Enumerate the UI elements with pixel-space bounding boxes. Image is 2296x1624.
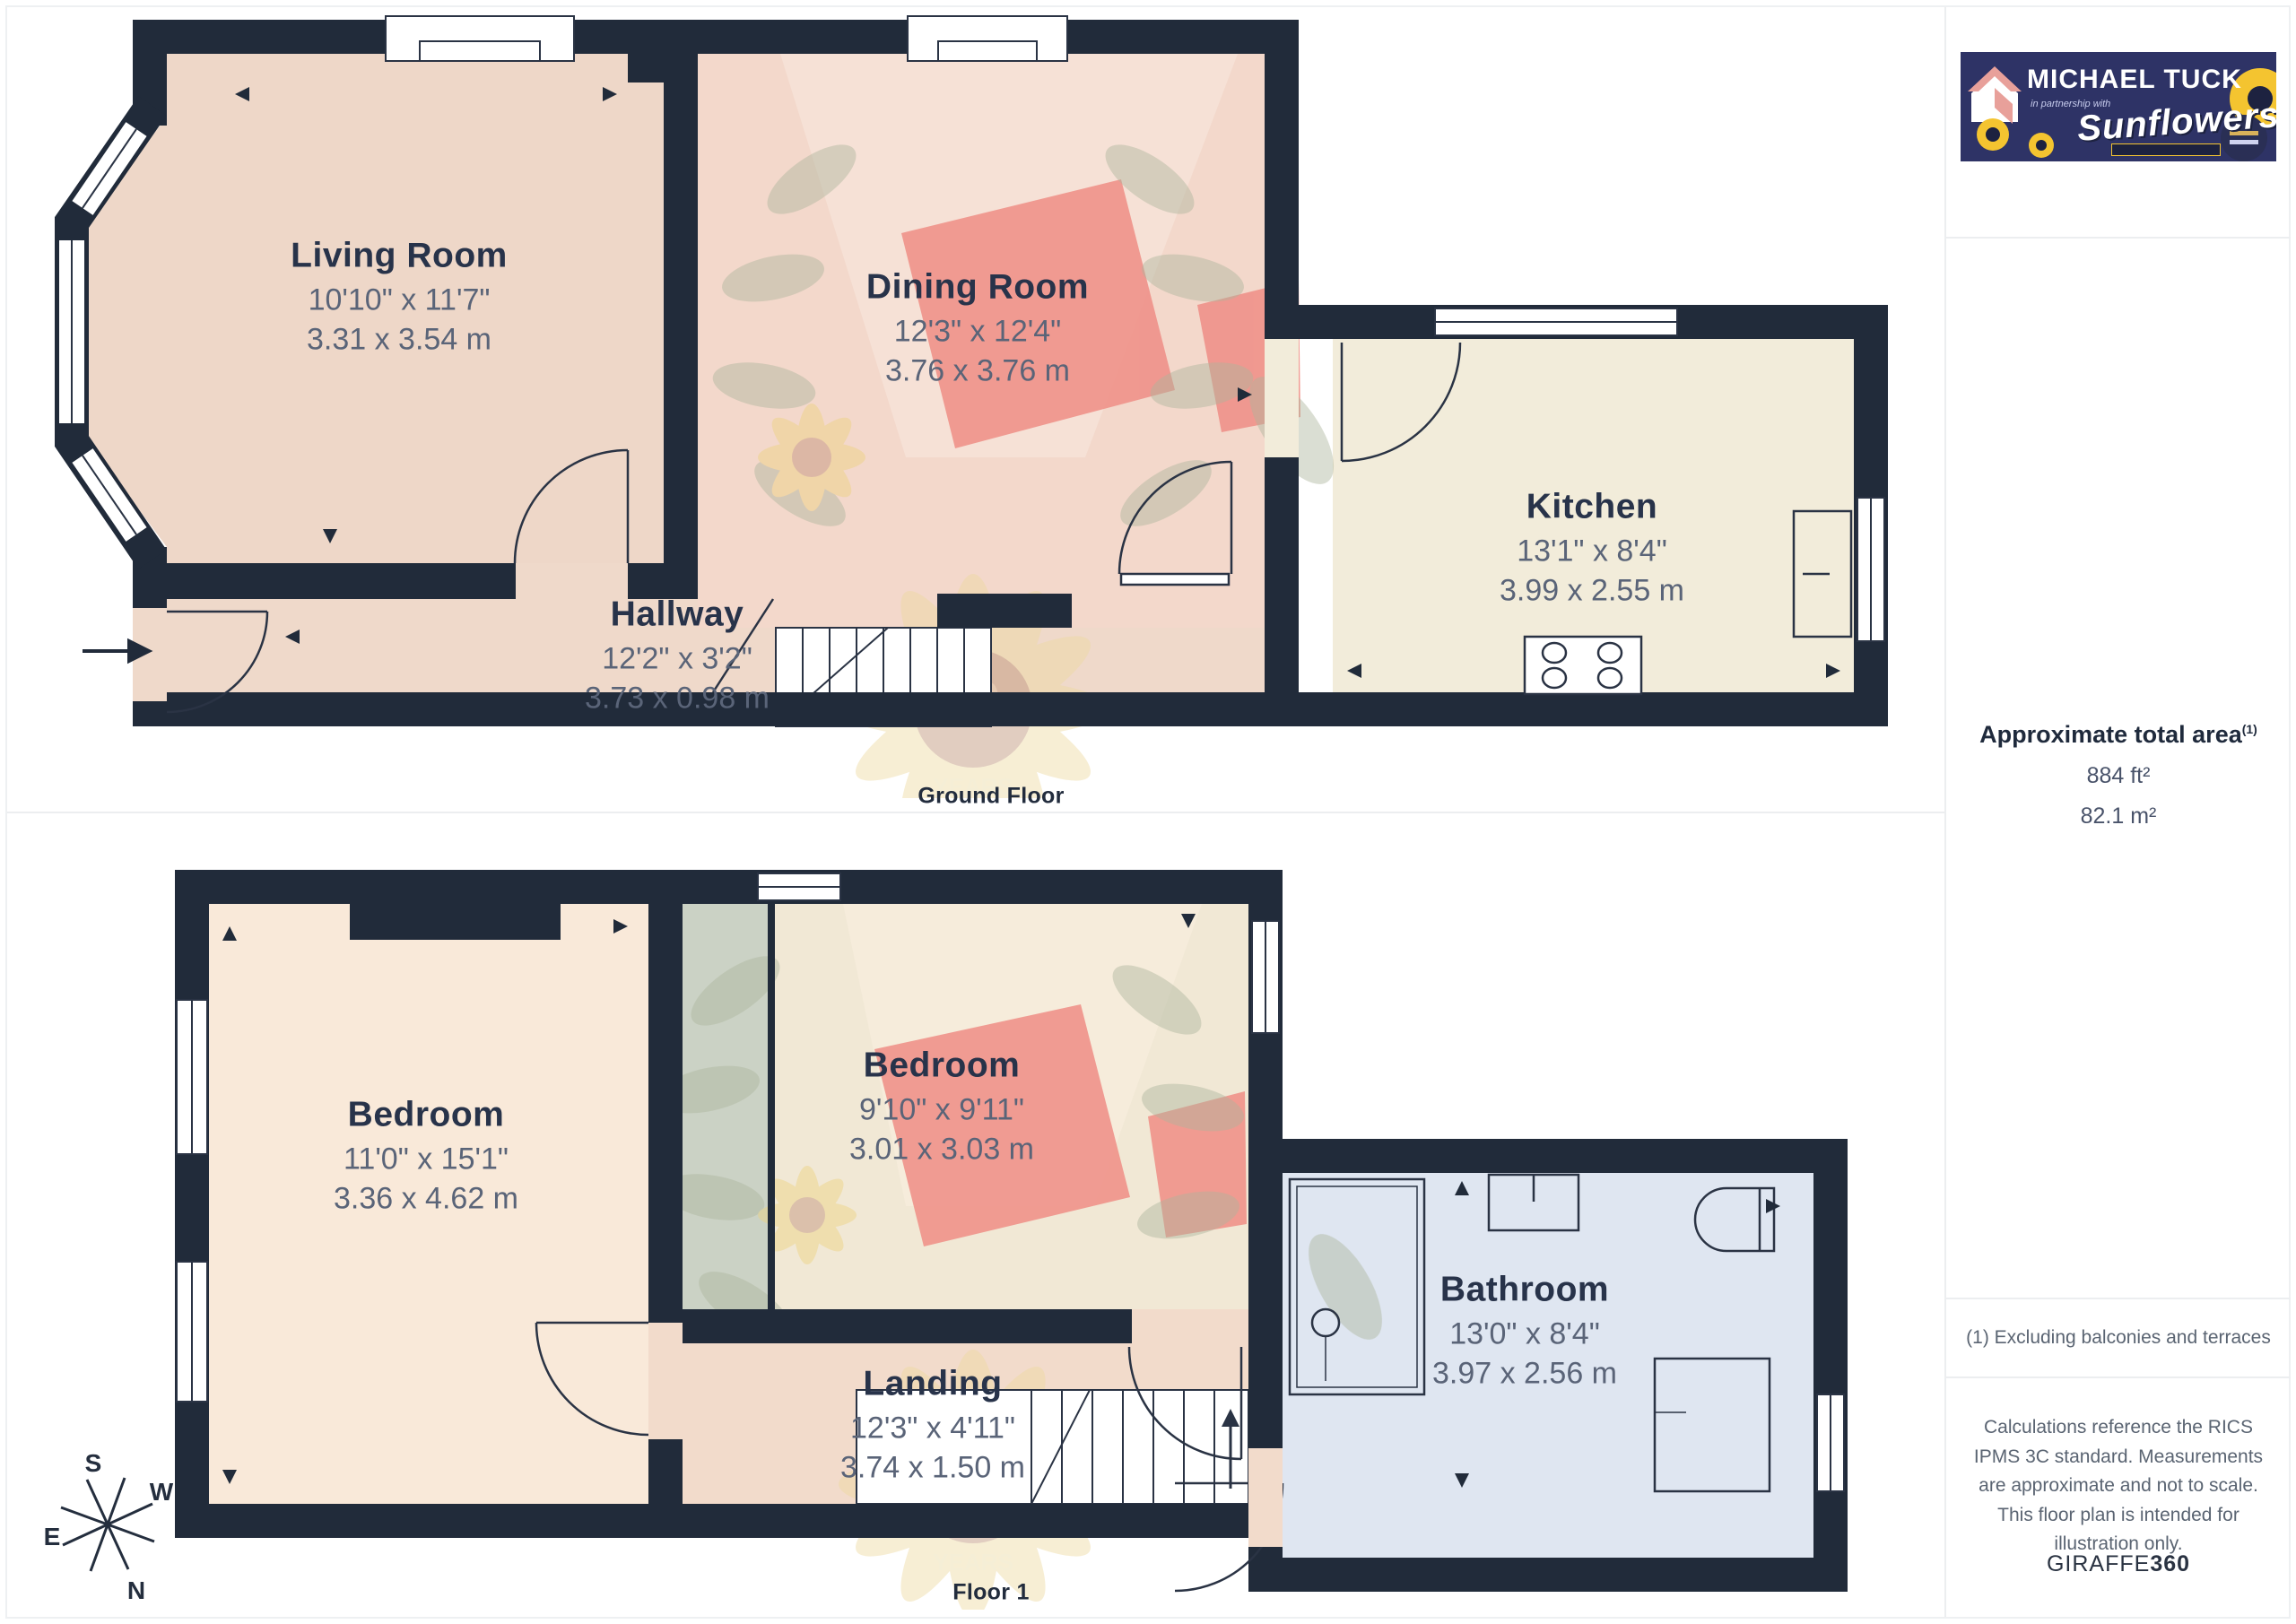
room-metric: 3.99 x 2.55 m — [1500, 570, 1684, 610]
kitchen-label: Kitchen 13'1" x 8'4" 3.99 x 2.55 m — [1500, 483, 1684, 610]
total-area-footnote-marker: (1) — [2242, 722, 2257, 736]
logo-brand-text: MICHAEL TUCK — [2027, 65, 2242, 95]
room-metric: 3.76 x 3.76 m — [866, 351, 1089, 390]
bathroom-label: Bathroom 13'0" x 8'4" 3.97 x 2.56 m — [1432, 1266, 1617, 1393]
compass-w: W — [150, 1478, 174, 1506]
compass-e: E — [44, 1523, 61, 1550]
room-imperial: 9'10" x 9'11" — [849, 1090, 1034, 1129]
footnote-text: (1) Excluding balconies and terraces — [1955, 1327, 2282, 1349]
entry-arrow — [83, 641, 149, 661]
credit-bold: 360 — [2150, 1551, 2190, 1576]
room-name: Hallway — [585, 591, 770, 638]
floorplan-page: 40 YEARS — [0, 0, 2296, 1624]
room-name: Bedroom — [849, 1042, 1034, 1090]
sidebar: MICHAEL TUCK in partnership with Sunflow… — [1946, 7, 2291, 1617]
compass-n: N — [127, 1576, 145, 1604]
room-imperial: 12'3" x 4'11" — [840, 1408, 1025, 1447]
total-area-block: Approximate total area(1) 884 ft² 82.1 m… — [1946, 721, 2291, 829]
giraffe360-credit: GIRAFFE360 — [1946, 1551, 2291, 1577]
room-name: Landing — [840, 1360, 1025, 1408]
total-area-title: Approximate total area(1) — [1946, 721, 2291, 749]
landing-label: Landing 12'3" x 4'11" 3.74 x 1.50 m — [840, 1360, 1025, 1487]
room-name: Bathroom — [1432, 1266, 1617, 1314]
credit-normal: GIRAFFE — [2047, 1551, 2150, 1576]
room-metric: 3.73 x 0.98 m — [585, 678, 770, 717]
dining-room-label: Dining Room 12'3" x 12'4" 3.76 x 3.76 m — [866, 264, 1089, 390]
room-metric: 3.74 x 1.50 m — [840, 1447, 1025, 1487]
room-imperial: 13'1" x 8'4" — [1500, 531, 1684, 570]
room-metric: 3.31 x 3.54 m — [291, 319, 508, 359]
total-area-title-text: Approximate total area — [1979, 721, 2242, 748]
total-area-metric: 82.1 m² — [1946, 803, 2291, 829]
floor-panel-divider — [7, 812, 1944, 813]
disclaimer-text: Calculations reference the RICS IPMS 3C … — [1962, 1413, 2274, 1559]
room-metric: 3.97 x 2.56 m — [1432, 1353, 1617, 1393]
compass-rose: S W E N — [27, 1448, 197, 1619]
room-name: Kitchen — [1500, 483, 1684, 531]
room-metric: 3.01 x 3.03 m — [849, 1129, 1034, 1168]
logo-subbar — [2111, 143, 2221, 156]
room-imperial: 11'0" x 15'1" — [334, 1139, 518, 1178]
floor1-plan: 40 YEARS — [0, 821, 1937, 1610]
bedroom1-label: Bedroom 11'0" x 15'1" 3.36 x 4.62 m — [334, 1091, 518, 1218]
floor1-caption: Floor 1 — [952, 1580, 1029, 1606]
room-imperial: 10'10" x 11'7" — [291, 280, 508, 319]
room-metric: 3.36 x 4.62 m — [334, 1178, 518, 1218]
bedroom2-label: Bedroom 9'10" x 9'11" 3.01 x 3.03 m — [849, 1042, 1034, 1168]
room-name: Living Room — [291, 232, 508, 280]
living-room-label: Living Room 10'10" x 11'7" 3.31 x 3.54 m — [291, 232, 508, 359]
bathroom-door-gap — [1248, 1448, 1283, 1547]
hallway-label: Hallway 12'2" x 3'2" 3.73 x 0.98 m — [585, 591, 770, 717]
compass-s: S — [85, 1449, 102, 1477]
room-imperial: 13'0" x 8'4" — [1432, 1314, 1617, 1353]
room-imperial: 12'3" x 12'4" — [866, 311, 1089, 351]
room-name: Dining Room — [866, 264, 1089, 311]
total-area-imperial: 884 ft² — [1946, 763, 2291, 789]
room-imperial: 12'2" x 3'2" — [585, 638, 770, 678]
ground-floor-caption: Ground Floor — [918, 784, 1064, 810]
kitchen-door-gap — [1265, 339, 1299, 457]
svg-text:YEARS: YEARS — [933, 1549, 1013, 1576]
ground-floor-plan: 40 YEARS — [0, 9, 1937, 798]
room-name: Bedroom — [334, 1091, 518, 1139]
agency-logo: MICHAEL TUCK in partnership with Sunflow… — [1961, 52, 2276, 161]
